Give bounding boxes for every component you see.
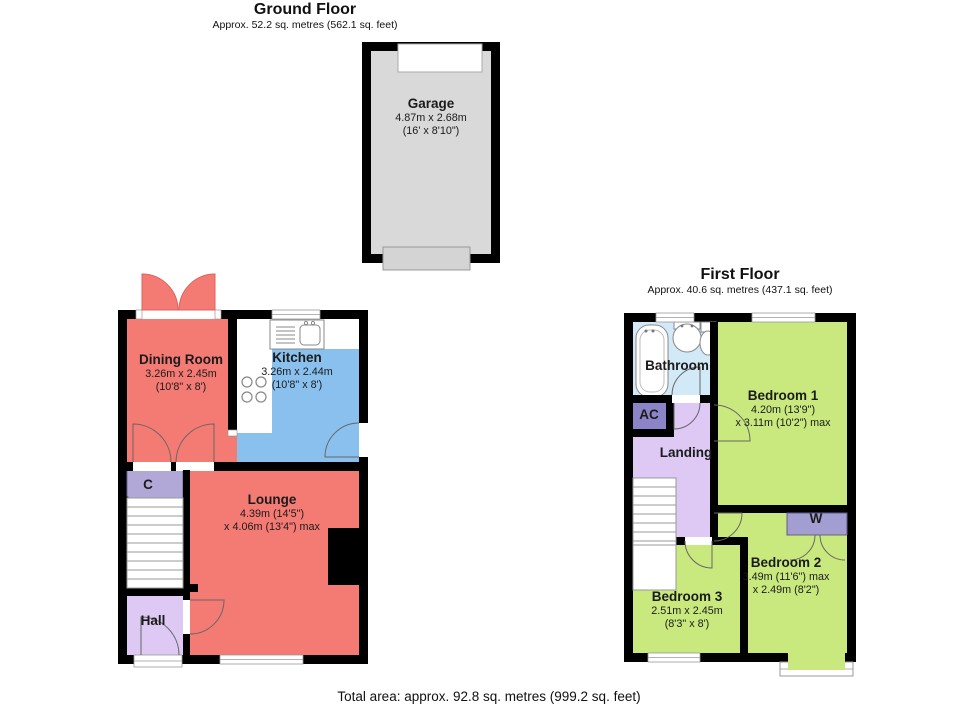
door-opening xyxy=(133,462,171,471)
dining-kitchen-wall xyxy=(228,319,237,430)
garage-plan xyxy=(362,42,500,270)
kitchen-window-icon xyxy=(272,310,320,319)
ground-stairs xyxy=(127,498,183,588)
first-floor-title: First Floor xyxy=(647,266,832,284)
chimney-breast xyxy=(328,528,368,585)
ac-label: AC xyxy=(639,407,659,423)
wardrobe-label: W xyxy=(810,511,823,527)
floorplan-page: Ground Floor Approx. 52.2 sq. metres (56… xyxy=(0,0,980,712)
french-doors-icon xyxy=(142,274,215,310)
ground-floor-area: Approx. 52.2 sq. metres (562.1 sq. feet) xyxy=(212,19,397,31)
dining-room-label: Dining Room 3.26m x 2.45m (10'8" x 8') xyxy=(136,352,226,393)
sink-icon xyxy=(673,322,701,352)
hall-window-icon xyxy=(134,655,182,667)
ac-wall-stub xyxy=(666,403,674,417)
door-jamb xyxy=(136,310,142,319)
hall-label: Hall xyxy=(141,613,166,629)
door-opening xyxy=(672,395,700,403)
garage-label: Garage 4.87m x 2.68m (16' x 8'10") xyxy=(395,96,466,137)
first-floor-header: First Floor Approx. 40.6 sq. metres (437… xyxy=(647,266,832,296)
kitchen-sink-icon xyxy=(270,320,324,349)
ground-floor-plan xyxy=(118,274,368,667)
bedroom3-window-icon xyxy=(648,653,700,662)
door-jamb xyxy=(215,310,221,319)
first-stairs xyxy=(633,478,676,590)
cupboard-label: C xyxy=(143,477,153,493)
garage-window-icon xyxy=(398,44,482,72)
lounge-window-icon xyxy=(220,655,303,664)
door-opening xyxy=(183,600,190,634)
landing-bedroom1-wall xyxy=(710,322,718,405)
bathroom-landing-wall xyxy=(624,395,718,403)
landing-label: Landing xyxy=(660,445,713,461)
wall-stub xyxy=(183,584,198,592)
stairs-lounge-wall xyxy=(183,470,190,592)
garage-door-icon xyxy=(383,247,470,270)
door-opening xyxy=(685,537,712,545)
bay-window-icon xyxy=(780,653,853,676)
bedroom2-label: Bedroom 2 3.49m (11'6") max x 2.49m (8'2… xyxy=(743,555,830,596)
bedroom3-label: Bedroom 3 2.51m x 2.45m (8'3" x 8') xyxy=(651,589,722,630)
ground-floor-header: Ground Floor Approx. 52.2 sq. metres (56… xyxy=(212,1,397,31)
total-area-label: Total area: approx. 92.8 sq. metres (999… xyxy=(337,689,640,704)
door-opening xyxy=(176,462,214,471)
kitchen-label: Kitchen 3.26m x 2.44m (10'8" x 8') xyxy=(261,350,332,391)
lounge-label: Lounge 4.39m (14'5") x 4.06m (13'4") max xyxy=(224,492,320,533)
ground-floor-title: Ground Floor xyxy=(212,1,397,19)
ac-bottom-wall xyxy=(624,429,674,437)
french-door-opening xyxy=(142,310,215,319)
bedroom1-window-icon xyxy=(752,313,815,322)
garage-floor xyxy=(371,51,491,254)
bathroom-label: Bathroom xyxy=(645,358,709,374)
bedroom1-label: Bedroom 1 4.20m (13'9") x 3.11m (10'2") … xyxy=(735,388,830,429)
back-door-opening xyxy=(359,423,368,457)
hall-stairs-wall xyxy=(118,588,150,596)
bedroom1-bedroom2-wall xyxy=(710,505,856,513)
first-floor-area: Approx. 40.6 sq. metres (437.1 sq. feet) xyxy=(647,284,832,296)
bathroom-window-icon xyxy=(656,313,694,322)
door-jamb xyxy=(228,430,237,436)
